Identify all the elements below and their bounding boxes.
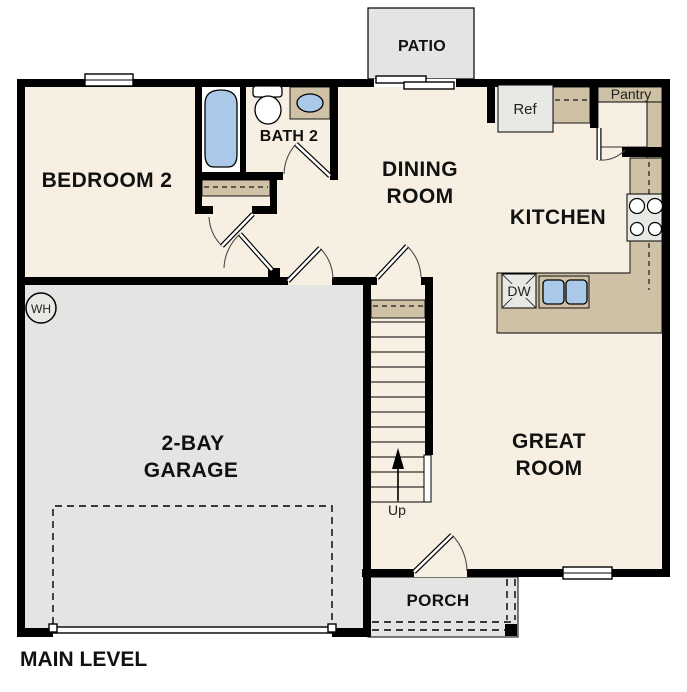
ref-label: Ref: [513, 101, 537, 118]
wall-exterior-left: [17, 79, 25, 637]
floor-plan-drawing: PATIO PORCH: [0, 0, 687, 687]
floor-plan-page: PATIO PORCH: [0, 0, 687, 687]
plan-title: MAIN LEVEL: [20, 648, 147, 671]
garage-door-jamb: [328, 624, 336, 632]
stair-railing: [424, 455, 431, 502]
kitchen-sink-icon: [539, 276, 589, 308]
wall-bath-south: [195, 172, 283, 180]
range-icon: [627, 194, 663, 241]
greatroom-label-line1: GREAT: [512, 430, 586, 453]
garage-label-line2: GARAGE: [144, 459, 239, 482]
dining-label-line2: ROOM: [387, 185, 454, 208]
front-door-opening: [414, 569, 467, 577]
wall-greatroom-front: [362, 569, 670, 577]
wh-label: WH: [31, 302, 51, 316]
dining-label-line1: DINING: [382, 158, 458, 181]
porch-label: PORCH: [407, 591, 470, 610]
wall-tub-divider: [240, 87, 246, 172]
garage-door-jamb: [49, 624, 57, 632]
dishwasher-icon: DW: [502, 274, 536, 308]
kitchen-label: KITCHEN: [510, 206, 606, 229]
water-heater-icon: WH: [26, 293, 56, 323]
wall-closet-stub-right: [252, 206, 277, 214]
patio-area: PATIO: [368, 8, 474, 79]
bedroom2-label: BEDROOM 2: [42, 169, 173, 192]
garage-door-panel: [53, 627, 332, 633]
porch-post: [505, 624, 517, 636]
garage-label-line1: 2-BAY: [161, 432, 224, 455]
patio-slider-panel: [404, 82, 454, 89]
toilet-tank-icon: [253, 86, 282, 97]
wall-bedroom-east: [195, 87, 202, 214]
wall-stair-west: [363, 277, 371, 637]
porch-area: PORCH: [368, 577, 518, 637]
wall-closet-stub-left: [195, 206, 213, 214]
bathtub-icon: [205, 90, 237, 167]
wall-pantry-stub: [590, 87, 598, 128]
up-label: Up: [388, 502, 406, 518]
vanity-sink-icon: [297, 94, 323, 112]
wall-pantry-south: [622, 147, 662, 157]
greatroom-label-line2: ROOM: [516, 457, 583, 480]
wall-exterior-right: [662, 79, 670, 577]
wall-stair-east: [425, 277, 433, 455]
wall-ref-stub: [487, 83, 495, 123]
wall-stair-east-stub: [421, 277, 433, 285]
stair-closet: [371, 300, 425, 318]
dw-label: DW: [507, 283, 531, 299]
wall-bath-east: [330, 87, 338, 180]
patio-label: PATIO: [398, 38, 446, 55]
bedroom2-closet: [202, 180, 270, 196]
closet-shelf: [202, 180, 270, 196]
counter-top-run: [553, 87, 590, 123]
garage-floor: [25, 285, 363, 628]
wall-bedroom-garage: [25, 277, 288, 285]
bath2-label: BATH 2: [260, 128, 318, 145]
pantry-label: Pantry: [611, 86, 651, 102]
closet-shelf: [371, 300, 425, 318]
wall-garage-front-left: [17, 628, 53, 637]
toilet-bowl-icon: [255, 96, 281, 124]
